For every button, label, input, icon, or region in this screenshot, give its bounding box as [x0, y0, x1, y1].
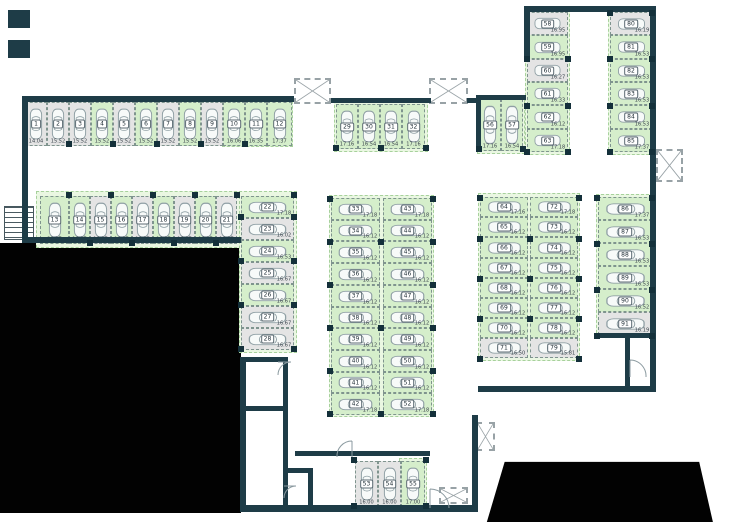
stall-number: 34	[349, 226, 363, 235]
structural-column	[327, 282, 333, 288]
stall-number: 58	[541, 19, 555, 28]
parking-stall[interactable]: 6116.33	[527, 82, 568, 105]
stall-area: 16.52	[635, 305, 649, 310]
structural-column	[327, 196, 333, 202]
parking-stall[interactable]: 8716.53	[598, 220, 652, 243]
wall-segment	[331, 98, 431, 103]
stall-area: 16.33	[551, 98, 565, 103]
stall-number: 52	[401, 400, 415, 409]
parking-stall[interactable]: 8016.19	[610, 12, 652, 35]
stall-area: 16.12	[415, 234, 429, 239]
ventilation-shaft-icon	[656, 149, 683, 182]
parking-stall[interactable]: 6716.12	[480, 258, 528, 278]
stall-number: 69	[497, 304, 511, 313]
void-area	[0, 243, 241, 513]
parking-stall[interactable]: 2616.67	[241, 284, 294, 306]
wall-segment	[240, 505, 478, 512]
parking-stall[interactable]: 6417.16	[480, 197, 528, 217]
structural-column	[476, 146, 482, 152]
parking-stall[interactable]: 3716.12	[331, 285, 380, 307]
stall-number: 91	[618, 319, 632, 328]
parking-stall[interactable]: 515.52	[113, 102, 135, 146]
stall-number: 49	[401, 335, 415, 344]
parking-stall[interactable]: 8617.37	[598, 197, 652, 220]
parking-stall[interactable]: 3916.12	[331, 328, 380, 350]
stall-number: 14	[73, 216, 87, 225]
stall-number: 87	[618, 227, 632, 236]
structural-column	[327, 411, 333, 417]
stall-area: 16.12	[363, 365, 377, 370]
stall-number: 27	[261, 313, 275, 322]
stall-number: 84	[624, 113, 638, 122]
stall-number: 56	[483, 121, 497, 130]
stall-area: 17.18	[561, 210, 575, 215]
parking-stall[interactable]: 1016.06	[223, 102, 245, 146]
stall-area: 15.52	[160, 139, 177, 144]
parking-stall[interactable]: 3016.54	[358, 104, 380, 149]
stall-number: 12	[273, 120, 287, 129]
parking-stall[interactable]: 2316.02	[241, 218, 294, 240]
parking-stall[interactable]: 5116.12	[383, 372, 432, 393]
structural-column	[649, 103, 655, 109]
stall-area: 16.54	[383, 142, 400, 147]
structural-column	[171, 240, 177, 246]
stall-area: 16.54	[504, 144, 521, 149]
structural-column	[565, 149, 571, 155]
wall-segment	[596, 333, 654, 338]
ventilation-shaft-icon	[429, 78, 468, 104]
parking-stall[interactable]: 615.52	[135, 102, 157, 146]
parking-stall[interactable]: 7816.12	[530, 318, 578, 338]
parking-stall[interactable]: 7016.12	[480, 318, 528, 338]
parking-stall[interactable]: 3816.12	[331, 307, 380, 328]
stall-number: 90	[618, 296, 632, 305]
parking-stall[interactable]: 215.52	[47, 102, 69, 146]
stall-number: 72	[547, 203, 561, 212]
parking-stall[interactable]: 8517.37	[610, 129, 652, 152]
stall-number: 7	[163, 120, 173, 129]
stall-area: 16.67	[277, 299, 291, 304]
parking-stall[interactable]: 4217.18	[331, 393, 380, 415]
structural-column	[477, 195, 483, 201]
parking-stall[interactable]: 2816.67	[241, 328, 294, 350]
wall-segment	[240, 357, 246, 512]
parking-stall[interactable]: 9016.52	[598, 289, 652, 312]
parking-stall[interactable]: 1217.37	[267, 102, 292, 146]
stall-number: 2	[53, 120, 63, 129]
parking-stall[interactable]: 7516.12	[530, 258, 578, 278]
structural-column	[423, 503, 429, 509]
structural-column	[378, 411, 384, 417]
parking-stall[interactable]: 6516.12	[480, 217, 528, 237]
parking-stall[interactable]: 2516.67	[241, 262, 294, 284]
parking-stall[interactable]: 7915.81	[530, 338, 578, 358]
stall-number: 51	[401, 378, 415, 387]
stall-area: 16.53	[635, 282, 649, 287]
structural-column	[198, 141, 204, 147]
stall-number: 82	[624, 66, 638, 75]
stall-area: 16.12	[511, 291, 525, 296]
stall-number: 42	[349, 400, 363, 409]
stall-number: 5	[119, 120, 129, 129]
parking-stall[interactable]: 6816.12	[480, 278, 528, 298]
parking-stall[interactable]: 4116.12	[331, 372, 380, 393]
exterior-landing	[8, 40, 30, 58]
stall-number: 33	[349, 205, 363, 214]
stall-area: 17.16	[405, 142, 423, 147]
parking-stall[interactable]: 4716.12	[383, 285, 432, 307]
stall-area: 17.16	[511, 210, 525, 215]
parking-stall[interactable]: 8416.53	[610, 105, 652, 129]
stall-number: 81	[624, 43, 638, 52]
structural-column	[291, 302, 297, 308]
stall-number: 40	[349, 357, 363, 366]
stall-number: 3	[75, 120, 85, 129]
parking-stall[interactable]: 5617.16	[479, 99, 501, 151]
stall-number: 29	[340, 122, 354, 131]
parking-stall[interactable]: 2416.53	[241, 240, 294, 262]
stall-area: 16.12	[561, 291, 575, 296]
stall-number: 75	[547, 264, 561, 273]
void-area	[480, 460, 754, 522]
stall-area: 16.12	[363, 321, 377, 326]
parking-stall[interactable]: 6216.12	[527, 105, 568, 129]
stall-area: 16.67	[277, 277, 291, 282]
parking-stall[interactable]: 7316.12	[530, 217, 578, 237]
stall-area: 17.18	[363, 213, 377, 218]
stall-number: 50	[401, 357, 415, 366]
structural-column	[291, 192, 297, 198]
stall-area: 15.81	[561, 351, 575, 356]
stall-area: 16.12	[561, 331, 575, 336]
structural-column	[607, 149, 613, 155]
stall-number: 19	[178, 216, 192, 225]
structural-column	[213, 240, 219, 246]
parking-stall[interactable]: 4916.12	[383, 328, 432, 350]
stall-area: 16.27	[551, 75, 565, 80]
structural-column	[565, 103, 571, 109]
wall-segment	[240, 357, 288, 362]
wall-segment	[625, 335, 630, 388]
parking-stall[interactable]: 8216.53	[610, 59, 652, 82]
parking-stall[interactable]: 8316.53	[610, 82, 652, 105]
stall-area: 17.18	[415, 408, 429, 413]
parking-stall[interactable]: 7716.12	[530, 298, 578, 318]
parking-stall[interactable]: 5016.12	[383, 350, 432, 372]
structural-column	[351, 503, 357, 509]
stall-number: 63	[541, 136, 555, 145]
stall-area: 15.52	[116, 139, 133, 144]
parking-stall[interactable]: 3217.16	[402, 104, 425, 149]
ventilation-shaft-icon	[294, 78, 331, 104]
structural-column	[291, 258, 297, 264]
stall-number: 15	[94, 216, 108, 225]
structural-column	[238, 302, 244, 308]
stall-number: 18	[157, 216, 171, 225]
parking-stall[interactable]: 114.04	[25, 102, 47, 146]
parking-stall[interactable]: 8916.53	[598, 266, 652, 289]
structural-column	[333, 145, 339, 151]
stall-area: 17.37	[635, 213, 649, 218]
parking-stall[interactable]: 7217.18	[530, 197, 578, 217]
parking-stall[interactable]: 5716.54	[501, 99, 523, 151]
stall-number: 30	[362, 122, 376, 131]
wall-segment	[472, 415, 478, 512]
structural-column	[66, 141, 72, 147]
parking-stall[interactable]: 3116.54	[380, 104, 402, 149]
stall-number: 86	[618, 204, 632, 213]
parking-stall[interactable]: 3516.12	[331, 241, 380, 263]
stall-number: 37	[349, 292, 363, 301]
parking-stall[interactable]: 7116.50	[480, 338, 528, 358]
structural-column	[430, 282, 436, 288]
stall-number: 9	[207, 120, 217, 129]
wall-segment	[295, 451, 353, 456]
stall-area: 16.12	[415, 321, 429, 326]
parking-stall[interactable]: 1116.35	[245, 102, 267, 146]
stall-number: 54	[383, 480, 397, 489]
structural-column	[594, 195, 600, 201]
parking-stall[interactable]: 4816.12	[383, 307, 432, 328]
stall-number: 88	[618, 250, 632, 259]
stall-area: 16.35	[248, 139, 265, 144]
wall-segment	[308, 468, 313, 512]
ventilation-shaft-icon	[439, 487, 468, 504]
stall-number: 8	[185, 120, 195, 129]
parking-stall[interactable]: 3416.12	[331, 220, 380, 241]
parking-stall[interactable]: 815.52	[179, 102, 201, 146]
parking-stall[interactable]: 2716.67	[241, 306, 294, 328]
stall-area: 16.95	[551, 52, 565, 57]
structural-column	[649, 241, 655, 247]
stall-area: 16.12	[415, 343, 429, 348]
structural-column	[327, 368, 333, 374]
structural-column	[430, 411, 436, 417]
stall-number: 6	[141, 120, 151, 129]
parking-stall[interactable]: 5517.00	[401, 461, 425, 507]
stall-area: 16.53	[635, 52, 649, 57]
stall-area: 16.12	[363, 386, 377, 391]
stall-area: 16.12	[561, 271, 575, 276]
stall-area: 16.67	[277, 321, 291, 326]
parking-stall[interactable]: 5816.95	[527, 12, 568, 35]
stall-number: 26	[261, 291, 275, 300]
structural-column	[154, 141, 160, 147]
stall-area: 16.12	[511, 311, 525, 316]
stall-area: 16.12	[561, 251, 575, 256]
stall-number: 10	[227, 120, 241, 129]
parking-stall[interactable]: 4616.12	[383, 263, 432, 285]
parking-stall[interactable]: 5316.00	[355, 461, 378, 507]
stall-number: 78	[547, 324, 561, 333]
structural-column	[108, 192, 114, 198]
exterior-landing	[8, 10, 30, 28]
structural-column	[378, 145, 384, 151]
wall-segment	[476, 95, 526, 100]
stall-area: 16.67	[277, 343, 291, 348]
structural-column	[527, 316, 533, 322]
parking-stall[interactable]: 5916.95	[527, 35, 568, 59]
structural-column	[576, 356, 582, 362]
stall-number: 28	[261, 335, 275, 344]
stall-area: 17.18	[277, 211, 291, 216]
stall-number: 20	[199, 216, 213, 225]
stall-area: 16.02	[277, 233, 291, 238]
parking-stall[interactable]: 8116.53	[610, 35, 652, 59]
stall-number: 21	[220, 216, 234, 225]
structural-column	[192, 192, 198, 198]
structural-column	[327, 325, 333, 331]
parking-stall[interactable]: 6016.27	[527, 59, 568, 82]
parking-stall[interactable]: 415.52	[91, 102, 113, 146]
structural-column	[150, 192, 156, 198]
stall-number: 61	[541, 89, 555, 98]
structural-column	[378, 325, 384, 331]
stall-number: 80	[624, 19, 638, 28]
stall-area: 14.04	[28, 139, 45, 144]
stall-number: 53	[360, 480, 374, 489]
stall-number: 25	[261, 269, 275, 278]
stall-number: 60	[541, 66, 555, 75]
stall-number: 62	[541, 113, 555, 122]
stall-area: 16.53	[277, 255, 291, 260]
stall-number: 77	[547, 304, 561, 313]
stall-area: 15.52	[138, 139, 155, 144]
structural-column	[607, 103, 613, 109]
stall-area: 16.19	[635, 28, 649, 33]
structural-column	[649, 287, 655, 293]
parking-stall[interactable]: 2217.18	[241, 196, 294, 218]
structural-column	[238, 346, 244, 352]
parking-stall[interactable]: 7616.12	[530, 278, 578, 298]
stall-number: 66	[497, 243, 511, 252]
parking-stall[interactable]: 4516.12	[383, 241, 432, 263]
parking-stall[interactable]: 6916.12	[480, 298, 528, 318]
structural-column	[477, 276, 483, 282]
stall-number: 23	[261, 225, 275, 234]
stall-area: 16.12	[415, 300, 429, 305]
stall-number: 36	[349, 270, 363, 279]
stall-area: 16.50	[511, 351, 525, 356]
stall-number: 46	[401, 270, 415, 279]
structural-column	[576, 316, 582, 322]
parking-stall[interactable]: 4016.12	[331, 350, 380, 372]
stall-area: 17.18	[415, 213, 429, 218]
stall-number: 79	[547, 344, 561, 353]
stall-area: 16.12	[561, 230, 575, 235]
structural-column	[594, 287, 600, 293]
stall-number: 41	[349, 378, 363, 387]
stall-number: 16	[115, 216, 129, 225]
wall-segment	[22, 96, 294, 102]
parking-stall[interactable]: 915.52	[201, 102, 223, 146]
parking-stall[interactable]: 8816.53	[598, 243, 652, 266]
stall-area: 16.12	[363, 256, 377, 261]
structural-column	[607, 10, 613, 16]
parking-stall[interactable]: 6616.12	[480, 237, 528, 258]
structural-column	[527, 276, 533, 282]
stall-number: 64	[497, 203, 511, 212]
stall-area: 17.18	[551, 145, 565, 150]
structural-column	[576, 236, 582, 242]
parking-stall[interactable]: 9116.19	[598, 312, 652, 335]
structural-column	[576, 195, 582, 201]
stall-area: 16.12	[415, 278, 429, 283]
stall-number: 74	[547, 243, 561, 252]
stall-number: 31	[384, 122, 398, 131]
structural-column	[524, 56, 530, 62]
structural-column	[110, 141, 116, 147]
stall-area: 16.12	[511, 230, 525, 235]
stall-area: 17.37	[635, 145, 649, 150]
stall-area: 16.12	[511, 251, 525, 256]
structural-column	[565, 56, 571, 62]
stall-area: 16.12	[363, 234, 377, 239]
structural-column	[649, 10, 655, 16]
stair-icon	[4, 206, 34, 240]
stall-area: 16.12	[415, 256, 429, 261]
stall-area: 17.16	[482, 144, 499, 149]
structural-column	[649, 195, 655, 201]
structural-column	[430, 239, 436, 245]
stall-area: 16.54	[361, 142, 378, 147]
parking-stall[interactable]: 2917.16	[336, 104, 358, 149]
structural-column	[430, 325, 436, 331]
parking-stall[interactable]: 715.52	[157, 102, 179, 146]
parking-stall[interactable]: 6317.18	[527, 129, 568, 152]
stall-area: 15.52	[204, 139, 221, 144]
parking-stall[interactable]: 3317.18	[331, 198, 380, 220]
stall-number: 76	[547, 284, 561, 293]
wall-segment	[350, 451, 430, 456]
parking-stall[interactable]: 4416.12	[383, 220, 432, 241]
structural-column	[291, 346, 297, 352]
structural-column	[594, 333, 600, 339]
structural-column	[576, 276, 582, 282]
structural-column	[477, 356, 483, 362]
parking-stall[interactable]: 5416.00	[378, 461, 401, 507]
stall-area: 17.16	[339, 142, 356, 147]
ventilation-shaft-icon	[476, 422, 495, 451]
wall-segment	[283, 357, 288, 512]
structural-column	[327, 239, 333, 245]
structural-column	[477, 236, 483, 242]
parking-stall[interactable]: 7416.12	[530, 237, 578, 258]
stall-area: 15.52	[94, 139, 111, 144]
stall-number: 57	[505, 121, 519, 130]
structural-column	[430, 196, 436, 202]
structural-column	[649, 149, 655, 155]
parking-stall[interactable]: 5217.18	[383, 393, 432, 415]
stall-area: 17.18	[363, 408, 377, 413]
structural-column	[524, 103, 530, 109]
structural-column	[378, 239, 384, 245]
parking-stall[interactable]: 3616.12	[331, 263, 380, 285]
parking-stall[interactable]: 4317.18	[383, 198, 432, 220]
stall-number: 44	[401, 226, 415, 235]
structural-column	[351, 457, 357, 463]
stall-area: 16.12	[415, 365, 429, 370]
structural-column	[423, 145, 429, 151]
stall-number: 89	[618, 273, 632, 282]
wall-segment	[524, 6, 530, 58]
stall-number: 24	[261, 247, 275, 256]
structural-column	[430, 368, 436, 374]
stall-area: 16.06	[226, 139, 243, 144]
stall-number: 73	[547, 223, 561, 232]
stall-area: 16.53	[635, 98, 649, 103]
parking-stall[interactable]: 315.52	[69, 102, 91, 146]
